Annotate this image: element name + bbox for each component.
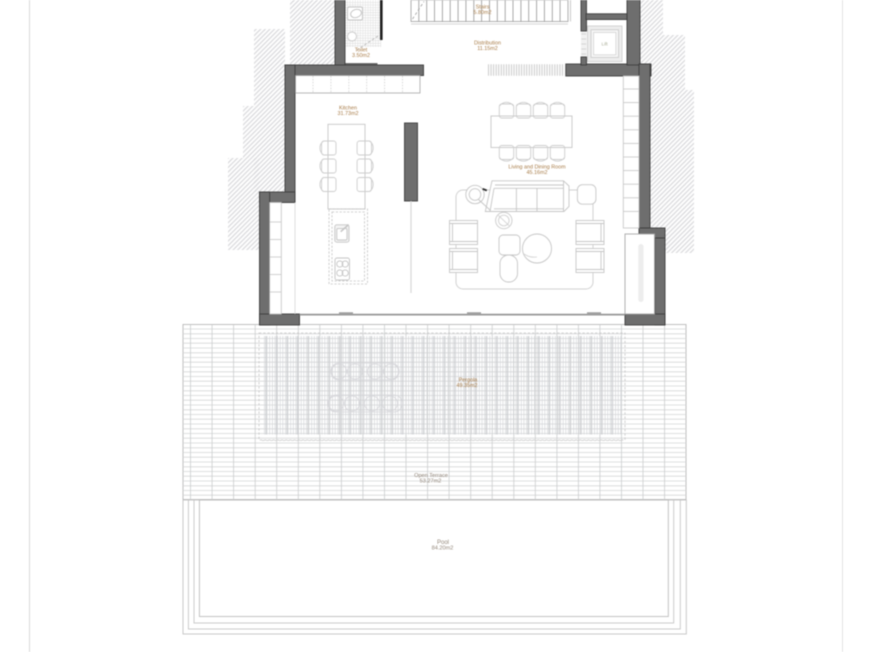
svg-text:11.15m2: 11.15m2 <box>477 46 498 52</box>
svg-text:5.80m2: 5.80m2 <box>474 10 492 16</box>
svg-text:31.73m2: 31.73m2 <box>338 111 359 117</box>
svg-text:49.35m2: 49.35m2 <box>457 383 478 389</box>
svg-text:3.50m2: 3.50m2 <box>352 53 370 59</box>
svg-text:Lift: Lift <box>602 42 609 47</box>
svg-text:84.20m2: 84.20m2 <box>432 546 454 552</box>
svg-text:53.27m2: 53.27m2 <box>420 479 442 485</box>
svg-text:45.16m2: 45.16m2 <box>527 170 548 176</box>
